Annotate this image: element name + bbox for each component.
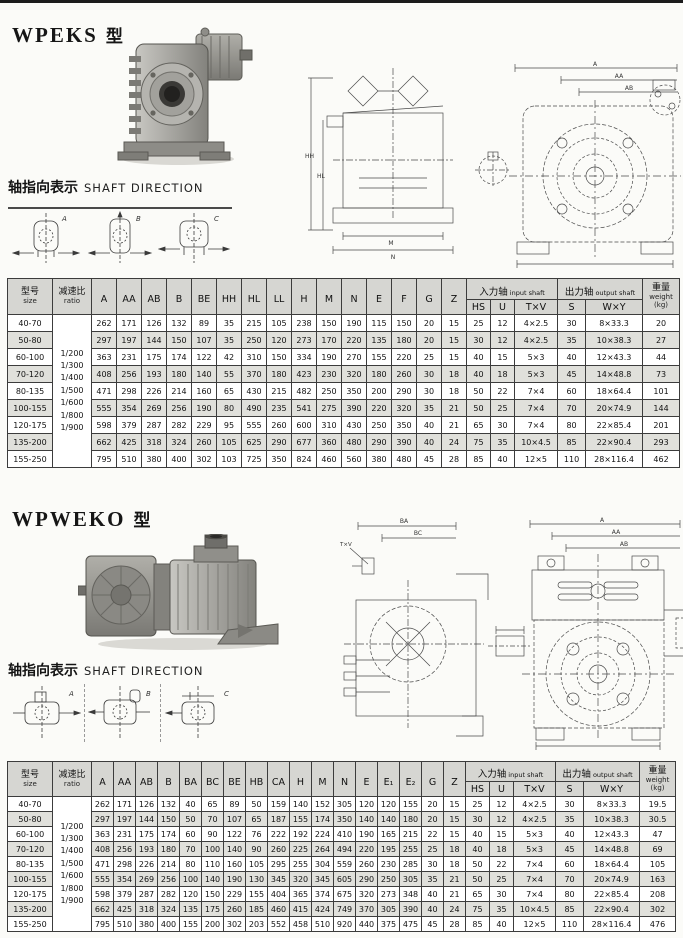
cell-dim: 275 <box>317 400 342 417</box>
cell-dim: 40 <box>422 887 444 902</box>
cell-input-shaft: 12 <box>491 315 515 332</box>
cell-dim: 50 <box>180 812 202 827</box>
cell-weight: 476 <box>640 917 676 932</box>
cell-dim: 471 <box>92 857 114 872</box>
cell-output-shaft: 8×33.3 <box>584 797 640 812</box>
cell-input-shaft: 5×3 <box>514 827 556 842</box>
cell-dim: 559 <box>334 857 356 872</box>
cell-dim: 390 <box>400 902 422 917</box>
cell-dim: 180 <box>367 366 392 383</box>
cell-dim: 662 <box>92 902 114 917</box>
col-header-dim: AB <box>142 279 167 315</box>
cell-dim: 100 <box>180 872 202 887</box>
cell-dim: 625 <box>242 434 267 451</box>
section-title-wpeks: WPEKS型 <box>12 22 123 48</box>
cell-dim: 269 <box>142 400 167 417</box>
cell-dim: 220 <box>342 332 367 349</box>
cell-dim: 345 <box>268 872 290 887</box>
cell-input-shaft: 40 <box>490 917 514 932</box>
cell-dim: 22 <box>422 827 444 842</box>
cell-dim: 795 <box>92 917 114 932</box>
cell-input-shaft: 7×4 <box>515 383 558 400</box>
cell-weight: 69 <box>640 842 676 857</box>
cell-output-shaft: 14×48.8 <box>584 842 640 857</box>
cell-output-shaft: 45 <box>558 366 586 383</box>
cell-output-shaft: 10×38.3 <box>584 812 640 827</box>
shaft-diagram-b: B <box>84 684 160 742</box>
col-header-dim: M <box>312 762 334 797</box>
cell-input-shaft: 22 <box>490 857 514 872</box>
cell-dim: 400 <box>158 917 180 932</box>
cell-input-shaft: 35 <box>490 902 514 917</box>
cell-dim: 287 <box>136 887 158 902</box>
shaft-direction-heading: 轴指向表示SHAFT DIRECTION <box>8 660 204 680</box>
cell-dim: 350 <box>334 812 356 827</box>
cell-dim: 190 <box>317 349 342 366</box>
cell-dim: 192 <box>290 827 312 842</box>
cell-dim: 471 <box>92 383 117 400</box>
cell-weight: 73 <box>643 366 680 383</box>
cell-dim: 250 <box>378 872 400 887</box>
cell-input-shaft: 50 <box>466 872 490 887</box>
cell-dim: 144 <box>136 812 158 827</box>
cell-dim: 24 <box>442 434 467 451</box>
cell-dim: 215 <box>267 383 292 400</box>
cell-size: 50-80 <box>8 812 53 827</box>
cell-dim: 190 <box>192 400 217 417</box>
col-header-dim: CA <box>268 762 290 797</box>
cell-dim: 560 <box>342 451 367 468</box>
cell-dim: 150 <box>158 812 180 827</box>
col-header-dim: HH <box>217 279 242 315</box>
cell-dim: 180 <box>267 366 292 383</box>
cell-dim: 510 <box>312 917 334 932</box>
cell-size: 50-80 <box>8 332 53 349</box>
cell-output-shaft: 20×74.9 <box>586 400 643 417</box>
cell-input-shaft: 25 <box>466 797 490 812</box>
cell-dim: 150 <box>167 332 192 349</box>
col-header-dim: B <box>158 762 180 797</box>
col-header-dim: M <box>317 279 342 315</box>
cell-weight: 462 <box>643 451 680 468</box>
col-header-dim: HB <box>246 762 268 797</box>
col-subheader: HS <box>467 300 491 315</box>
cell-dim: 318 <box>142 434 167 451</box>
cell-output-shaft: 45 <box>556 842 584 857</box>
diagram-letter: C <box>224 690 229 698</box>
catalog-page: WPEKS型 <box>0 0 683 938</box>
cell-dim: 89 <box>224 797 246 812</box>
col-subheader: S <box>556 782 584 797</box>
cell-dim: 408 <box>92 842 114 857</box>
cell-input-shaft: 12×5 <box>514 917 556 932</box>
cell-output-shaft: 22×85.4 <box>586 417 643 434</box>
cell-dim: 174 <box>167 349 192 366</box>
cell-input-shaft: 30 <box>490 887 514 902</box>
cell-dim: 150 <box>267 349 292 366</box>
cell-dim: 231 <box>117 349 142 366</box>
col-header-dim: BE <box>224 762 246 797</box>
cell-dim: 15 <box>444 812 466 827</box>
cell-dim: 150 <box>317 315 342 332</box>
cell-dim: 460 <box>268 902 290 917</box>
cell-dim: 105 <box>267 315 292 332</box>
diagram-letter: B <box>146 690 151 698</box>
cell-dim: 40 <box>417 434 442 451</box>
cell-dim: 229 <box>224 887 246 902</box>
cell-output-shaft: 80 <box>556 887 584 902</box>
cell-input-shaft: 30 <box>491 417 515 434</box>
shaft-diagram-a: A <box>8 684 84 742</box>
cell-dim: 425 <box>114 902 136 917</box>
cell-output-shaft: 28×116.4 <box>584 917 640 932</box>
wpweko-spec-table: 型号size减速比ratioAAAABBBABCBEHBCAHMNEE₁E₂GZ… <box>7 761 676 932</box>
cell-dim: 220 <box>356 842 378 857</box>
cell-dim: 302 <box>192 451 217 468</box>
cell-dim: 324 <box>167 434 192 451</box>
cell-dim: 35 <box>217 315 242 332</box>
cell-output-shaft: 40 <box>558 349 586 366</box>
cell-output-shaft: 35 <box>558 332 586 349</box>
cell-dim: 380 <box>142 451 167 468</box>
cell-dim: 260 <box>192 434 217 451</box>
cell-input-shaft: 40 <box>467 366 491 383</box>
cell-dim: 298 <box>117 383 142 400</box>
col-subheader: T×V <box>515 300 558 315</box>
cell-dim: 365 <box>290 887 312 902</box>
dim-label-m: M <box>388 240 393 247</box>
cell-input-shaft: 25 <box>467 315 491 332</box>
cell-dim: 305 <box>334 797 356 812</box>
cell-dim: 80 <box>180 857 202 872</box>
cell-dim: 105 <box>217 434 242 451</box>
cell-output-shaft: 85 <box>558 434 586 451</box>
cell-dim: 390 <box>342 400 367 417</box>
cell-dim: 260 <box>267 417 292 434</box>
cell-size: 70-120 <box>8 366 53 383</box>
cell-dim: 50 <box>246 797 268 812</box>
cell-dim: 80 <box>217 400 242 417</box>
cell-dim: 35 <box>417 400 442 417</box>
col-header-dim: AA <box>117 279 142 315</box>
cell-dim: 282 <box>167 417 192 434</box>
shaft-direction-diagrams: A B C <box>10 211 232 267</box>
col-header-dim: F <box>392 279 417 315</box>
cell-input-shaft: 15 <box>490 827 514 842</box>
cell-input-shaft: 10×4.5 <box>515 434 558 451</box>
cell-weight: 163 <box>640 872 676 887</box>
cell-dim: 25 <box>422 842 444 857</box>
col-header-dim: AA <box>114 762 136 797</box>
table-row: 135-200662425318324135175260185460415424… <box>8 902 676 917</box>
cell-dim: 90 <box>246 842 268 857</box>
cell-dim: 130 <box>246 872 268 887</box>
cell-dim: 30 <box>422 857 444 872</box>
cell-dim: 197 <box>114 812 136 827</box>
dim-label-aa: AA <box>612 529 621 536</box>
cell-dim: 160 <box>192 383 217 400</box>
cell-dim: 290 <box>367 434 392 451</box>
cell-dim: 380 <box>136 917 158 932</box>
wpweko-dimension-drawing: BA BC T×V A AA AB <box>338 514 683 752</box>
cell-dim: 290 <box>267 434 292 451</box>
cell-dim: 354 <box>114 872 136 887</box>
cell-dim: 555 <box>92 400 117 417</box>
cell-dim: 260 <box>392 366 417 383</box>
cell-dim: 180 <box>167 366 192 383</box>
cell-dim: 215 <box>242 315 267 332</box>
cell-input-shaft: 22 <box>491 383 515 400</box>
cell-input-shaft: 4×2.5 <box>514 812 556 827</box>
cell-dim: 120 <box>356 797 378 812</box>
cell-input-shaft: 40 <box>467 349 491 366</box>
cell-dim: 126 <box>142 315 167 332</box>
cell-dim: 105 <box>246 857 268 872</box>
model-name: WPWEKO <box>12 507 126 531</box>
cell-dim: 165 <box>378 827 400 842</box>
cell-dim: 120 <box>267 332 292 349</box>
cell-dim: 555 <box>242 417 267 434</box>
shaft-diagram-c: C <box>158 211 232 267</box>
table-row: 70-1204082561931807010014090260225264494… <box>8 842 676 857</box>
cell-size: 40-70 <box>8 797 53 812</box>
cell-dim: 190 <box>342 315 367 332</box>
col-subheader: S <box>558 300 586 315</box>
cell-dim: 410 <box>334 827 356 842</box>
col-subheader: U <box>490 782 514 797</box>
cell-input-shaft: 25 <box>490 872 514 887</box>
cell-dim: 155 <box>400 797 422 812</box>
cell-dim: 379 <box>114 887 136 902</box>
cell-dim: 175 <box>142 349 167 366</box>
cell-dim: 65 <box>217 383 242 400</box>
cell-input-shaft: 7×4 <box>515 400 558 417</box>
dim-label-hh: HH <box>305 153 314 160</box>
cell-input-shaft: 65 <box>467 417 491 434</box>
cell-dim: 305 <box>400 872 422 887</box>
cell-dim: 482 <box>292 383 317 400</box>
col-header-dim: Z <box>442 279 467 315</box>
cell-dim: 140 <box>224 842 246 857</box>
cell-dim: 140 <box>192 366 217 383</box>
cell-input-shaft: 7×4 <box>514 887 556 902</box>
cell-input-shaft: 4×2.5 <box>514 797 556 812</box>
table-row: 70-1204082561931801405537018042323032018… <box>8 366 680 383</box>
cell-input-shaft: 5×3 <box>515 349 558 366</box>
header-row: 型号size减速比ratioAAAABBBEHHHLLLHMNEFGZ入力轴 i… <box>8 279 680 300</box>
table-row: 60-1003632311751741224231015033419027015… <box>8 349 680 366</box>
cell-dim: 103 <box>217 451 242 468</box>
cell-dim: 18 <box>442 366 467 383</box>
cell-dim: 21 <box>444 887 466 902</box>
cell-dim: 45 <box>422 917 444 932</box>
cell-dim: 95 <box>217 417 242 434</box>
col-header-output-shaft: 出力轴 output shaft <box>558 279 643 300</box>
cell-output-shaft: 10×38.3 <box>586 332 643 349</box>
cell-dim: 135 <box>180 902 202 917</box>
cell-dim: 21 <box>442 417 467 434</box>
cell-dim: 40 <box>180 797 202 812</box>
cell-dim: 334 <box>292 349 317 366</box>
cell-output-shaft: 22×90.4 <box>586 434 643 451</box>
cell-size: 60-100 <box>8 827 53 842</box>
dim-label-txv: T×V <box>339 542 352 548</box>
table-row: 155-250795510380400302103725350824460560… <box>8 451 680 468</box>
cell-ratio: 1/200 1/300 1/400 1/500 1/600 1/800 1/90… <box>53 797 92 932</box>
cell-dim: 424 <box>312 902 334 917</box>
cell-dim: 510 <box>117 451 142 468</box>
cell-input-shaft: 18 <box>491 366 515 383</box>
shaft-direction-en: SHAFT DIRECTION <box>84 181 204 195</box>
cell-dim: 152 <box>312 797 334 812</box>
cell-input-shaft: 7×4 <box>514 872 556 887</box>
cell-dim: 318 <box>136 902 158 917</box>
cell-dim: 220 <box>392 349 417 366</box>
cell-input-shaft: 75 <box>466 902 490 917</box>
col-subheader: U <box>491 300 515 315</box>
page-top-rule <box>0 0 683 3</box>
cell-dim: 295 <box>268 857 290 872</box>
cell-dim: 795 <box>92 451 117 468</box>
cell-dim: 226 <box>142 383 167 400</box>
cell-dim: 20 <box>417 332 442 349</box>
cell-input-shaft: 85 <box>466 917 490 932</box>
cell-input-shaft: 65 <box>466 887 490 902</box>
cell-input-shaft: 40 <box>491 451 515 468</box>
cell-dim: 598 <box>92 417 117 434</box>
cell-dim: 490 <box>242 400 267 417</box>
cell-dim: 15 <box>444 797 466 812</box>
cell-weight: 208 <box>640 887 676 902</box>
cell-dim: 725 <box>242 451 267 468</box>
col-header-weight: 重量weight(kg) <box>640 762 676 797</box>
cell-size: 60-100 <box>8 349 53 366</box>
table-row: 50-8029719714415050701076518715517435014… <box>8 812 676 827</box>
cell-output-shaft: 12×43.3 <box>586 349 643 366</box>
cell-dim: 370 <box>242 366 267 383</box>
wpweko-product-photo <box>78 534 283 654</box>
table-row: 100-155555354269256100140190130345320345… <box>8 872 676 887</box>
col-header-weight: 重量weight(kg) <box>643 279 680 315</box>
table-row: 155-250795510380400155200302203552458510… <box>8 917 676 932</box>
header-row: 型号size减速比ratioAAAABBBABCBEHBCAHMNEE₁E₂GZ… <box>8 762 676 782</box>
cell-dim: 273 <box>378 887 400 902</box>
cell-size: 135-200 <box>8 434 53 451</box>
cell-dim: 180 <box>158 842 180 857</box>
cell-dim: 363 <box>92 349 117 366</box>
diagram-letter: B <box>136 215 141 223</box>
cell-dim: 541 <box>292 400 317 417</box>
cell-output-shaft: 60 <box>558 383 586 400</box>
cell-dim: 140 <box>202 872 224 887</box>
cell-output-shaft: 12×43.3 <box>584 827 640 842</box>
col-header-dim: A <box>92 279 117 315</box>
cell-dim: 150 <box>202 887 224 902</box>
cell-input-shaft: 5×3 <box>514 842 556 857</box>
cell-dim: 100 <box>202 842 224 857</box>
cell-size: 80-135 <box>8 857 53 872</box>
cell-dim: 203 <box>246 917 268 932</box>
cell-input-shaft: 12 <box>491 332 515 349</box>
cell-dim: 430 <box>342 417 367 434</box>
dim-label-ab: AB <box>625 85 633 92</box>
cell-output-shaft: 35 <box>556 812 584 827</box>
cell-dim: 350 <box>392 417 417 434</box>
cell-dim: 310 <box>242 349 267 366</box>
cell-output-shaft: 18×64.4 <box>586 383 643 400</box>
dim-label-aa: AA <box>615 73 624 80</box>
cell-dim: 297 <box>92 812 114 827</box>
cell-dim: 220 <box>367 400 392 417</box>
cell-input-shaft: 85 <box>467 451 491 468</box>
cell-weight: 19.5 <box>640 797 676 812</box>
cell-dim: 250 <box>242 332 267 349</box>
cell-input-shaft: 30 <box>466 812 490 827</box>
cell-dim: 40 <box>417 417 442 434</box>
cell-dim: 214 <box>167 383 192 400</box>
cell-weight: 20 <box>643 315 680 332</box>
cell-weight: 44 <box>643 349 680 366</box>
cell-output-shaft: 18×64.4 <box>584 857 640 872</box>
col-header-dim: BA <box>180 762 202 797</box>
cell-dim: 297 <box>92 332 117 349</box>
cell-dim: 150 <box>392 315 417 332</box>
cell-dim: 193 <box>142 366 167 383</box>
cell-dim: 552 <box>268 917 290 932</box>
cell-dim: 122 <box>192 349 217 366</box>
cell-dim: 45 <box>417 451 442 468</box>
cell-input-shaft: 12 <box>490 797 514 812</box>
cell-dim: 222 <box>268 827 290 842</box>
cell-dim: 285 <box>400 857 422 872</box>
cell-dim: 380 <box>367 451 392 468</box>
cell-output-shaft: 22×85.4 <box>584 887 640 902</box>
cell-size: 120-175 <box>8 887 53 902</box>
col-subheader: W×Y <box>584 782 640 797</box>
cell-dim: 230 <box>317 366 342 383</box>
cell-dim: 18 <box>444 842 466 857</box>
cell-dim: 480 <box>392 451 417 468</box>
cell-dim: 185 <box>246 902 268 917</box>
cell-dim: 15 <box>442 332 467 349</box>
cell-dim: 430 <box>242 383 267 400</box>
cell-dim: 320 <box>356 887 378 902</box>
table-header: 型号size减速比ratioAAAABBBEHHHLLLHMNEFGZ入力轴 i… <box>8 279 680 315</box>
cell-dim: 215 <box>400 827 422 842</box>
cell-dim: 260 <box>356 857 378 872</box>
cell-dim: 415 <box>290 902 312 917</box>
diagram-letter: C <box>214 215 219 223</box>
cell-dim: 155 <box>246 887 268 902</box>
cell-dim: 226 <box>136 857 158 872</box>
col-header-dim: AB <box>136 762 158 797</box>
cell-dim: 18 <box>444 857 466 872</box>
col-header-dim: Z <box>444 762 466 797</box>
col-header-dim: E <box>356 762 378 797</box>
col-header-input-shaft: 入力轴 input shaft <box>467 279 558 300</box>
cell-dim: 305 <box>378 902 400 917</box>
cell-dim: 460 <box>317 451 342 468</box>
cell-dim: 135 <box>367 332 392 349</box>
cell-dim: 273 <box>292 332 317 349</box>
cell-dim: 250 <box>367 417 392 434</box>
cell-dim: 229 <box>192 417 217 434</box>
cell-dim: 256 <box>158 872 180 887</box>
cell-dim: 195 <box>378 842 400 857</box>
shaft-direction-zh: 轴指向表示 <box>8 663 78 679</box>
cell-size: 155-250 <box>8 917 53 932</box>
table-row: 40-701/200 1/300 1/400 1/500 1/600 1/800… <box>8 315 680 332</box>
